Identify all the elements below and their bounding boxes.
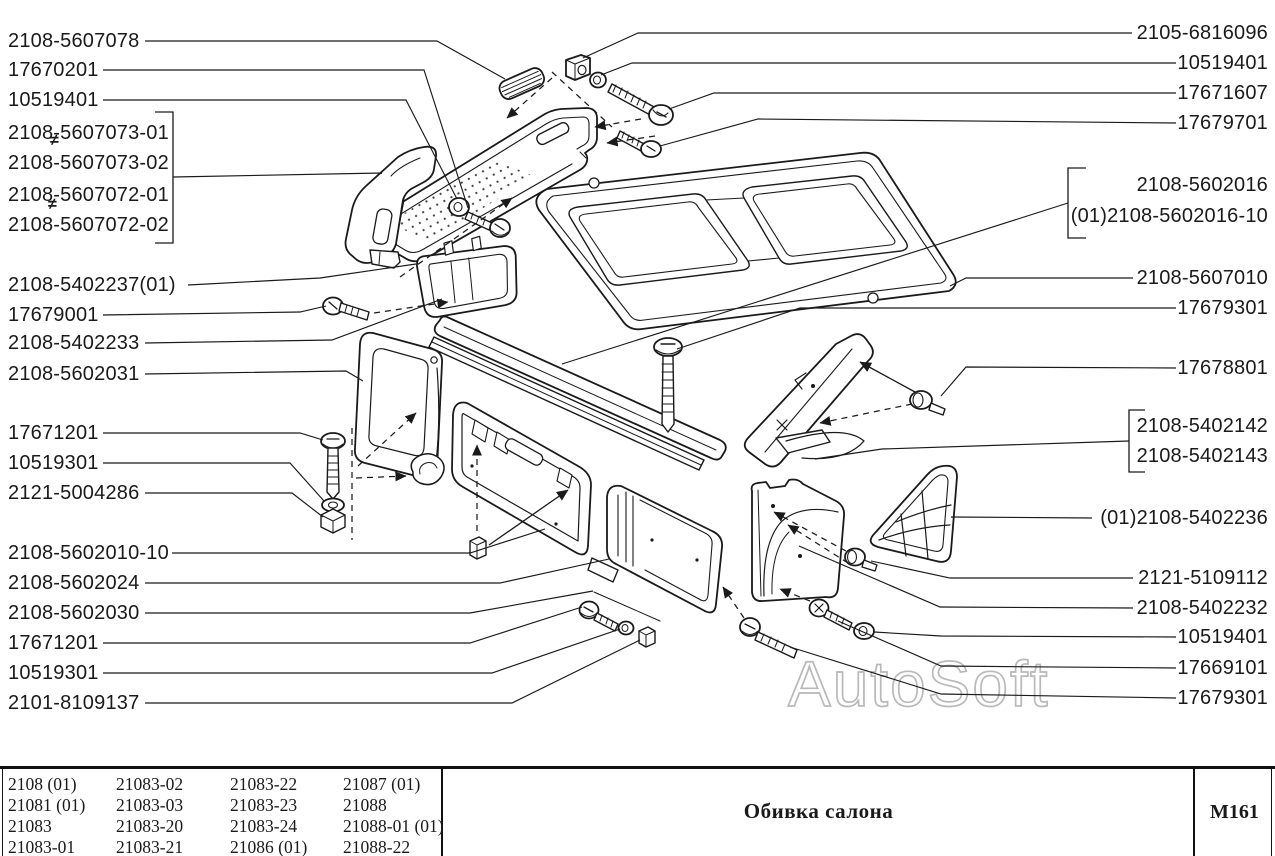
diagram-title: Обивка салона — [444, 799, 1193, 824]
part-label: 2105-6816096 — [1137, 22, 1268, 44]
part-label: 2108-5402143 — [1137, 445, 1268, 467]
part-label: 17670201 — [8, 59, 99, 81]
pillar-trim-right — [745, 334, 873, 466]
model-code-cell: 21088 — [343, 795, 444, 816]
part-label: 2108-5607010 — [1137, 267, 1268, 289]
model-code-cell: 21083-22 — [230, 774, 307, 795]
part-label: 17671201 — [8, 422, 99, 444]
part-label: 2108-5402142 — [1137, 415, 1268, 437]
model-code-cell: 21083-03 — [116, 795, 183, 816]
model-code-cell: 21083 — [8, 816, 85, 837]
model-code-cell: 2108 (01) — [8, 774, 85, 795]
part-label: 17678801 — [1177, 357, 1268, 379]
footer-table: 2108 (01) 21081 (01) 21083 21083-01 2108… — [0, 766, 1275, 856]
triangular-grid-panel — [871, 466, 957, 562]
part-label: 2108-5607072-01 — [8, 184, 169, 206]
part-label: (01)2108-5402236 — [1100, 507, 1268, 529]
part-label: 2108-5607078 — [8, 30, 139, 52]
model-list-column: 21083-02 21083-03 21083-20 21083-21 — [116, 774, 183, 856]
model-code-cell: 21083-23 — [230, 795, 307, 816]
model-code-cell: 21083-01 — [8, 837, 85, 856]
screw-icon — [617, 131, 661, 157]
part-label: 2108-5602030 — [8, 602, 139, 624]
page-code: M161 — [1196, 801, 1273, 824]
model-code-cell: 21088-22 — [343, 837, 444, 856]
leader-lines — [103, 33, 1176, 703]
side-trim-panel — [355, 333, 444, 485]
model-code-cell: 21083-02 — [116, 774, 183, 795]
not-interchangeable-mark: ≠ — [48, 198, 57, 212]
part-label: 2108-5607072-02 — [8, 214, 169, 236]
part-label: 2108-5607073-01 — [8, 122, 169, 144]
part-label: 10519301 — [8, 662, 99, 684]
part-label: 2121-5109112 — [1138, 567, 1268, 589]
part-label: 2108-5402237(01) — [8, 274, 176, 296]
vent-grille-icon — [497, 66, 547, 102]
model-code-cell: 21083-21 — [116, 837, 183, 856]
part-label: 2121-5004286 — [8, 482, 139, 504]
part-label: 2108-5402232 — [1137, 597, 1268, 619]
part-label: 2108-5402233 — [8, 332, 139, 354]
part-label: 10519301 — [8, 452, 99, 474]
model-code-cell: 21083-24 — [230, 816, 307, 837]
part-label: 17679301 — [1177, 687, 1268, 709]
part-label: 2108-5602031 — [8, 363, 139, 385]
exploded-parts-diagram: AutoSoft — [0, 0, 1275, 766]
model-list-column: 2108 (01) 21081 (01) 21083 21083-01 — [8, 774, 85, 856]
parts-catalog-page: AutoSoft — [0, 0, 1275, 856]
washer-icon — [590, 73, 606, 88]
model-list-column: 21087 (01) 21088 21088-01 (01) 21088-22 — [343, 774, 444, 856]
part-label: 17671607 — [1177, 82, 1268, 104]
headliner-panel — [536, 153, 955, 330]
screw-icon — [323, 298, 369, 321]
part-label: 10519401 — [1177, 52, 1268, 74]
nut-icon — [566, 55, 590, 80]
part-label: 2108-5607073-02 — [8, 152, 169, 174]
part-label: 17679701 — [1177, 112, 1268, 134]
part-label: 2101-8109137 — [8, 692, 139, 714]
part-label: 17671201 — [8, 632, 99, 654]
trim-clip-icon — [470, 537, 486, 559]
part-label: 17679301 — [1177, 297, 1268, 319]
wheel-arch-trim — [752, 480, 845, 602]
model-code-cell: 21086 (01) — [230, 837, 307, 856]
part-label: 10519401 — [8, 89, 99, 111]
part-label: (01)2108-5602016-10 — [1071, 205, 1268, 227]
model-code-cell: 21087 (01) — [343, 774, 444, 795]
part-label: 2108-5602010-10 — [8, 542, 169, 564]
part-label: 17669101 — [1177, 657, 1268, 679]
model-list-column: 21083-22 21083-23 21083-24 21086 (01) — [230, 774, 307, 856]
push-pin-icon — [910, 391, 945, 415]
model-code-cell: 21081 (01) — [8, 795, 85, 816]
part-label: 10519401 — [1177, 626, 1268, 648]
part-label: 17679001 — [8, 304, 99, 326]
not-interchangeable-mark: ≠ — [50, 134, 59, 148]
front-door-trim-panel — [452, 403, 591, 555]
part-label: 2108-5602024 — [8, 572, 139, 594]
rear-quarter-trim-panel — [588, 486, 722, 613]
part-label: 2108-5602016 — [1137, 174, 1268, 196]
model-code-cell: 21088-01 (01) — [343, 816, 444, 837]
table-border-left — [2, 769, 3, 856]
model-code-cell: 21083-20 — [116, 816, 183, 837]
table-divider — [1193, 769, 1195, 856]
fastener-stack — [321, 433, 345, 533]
